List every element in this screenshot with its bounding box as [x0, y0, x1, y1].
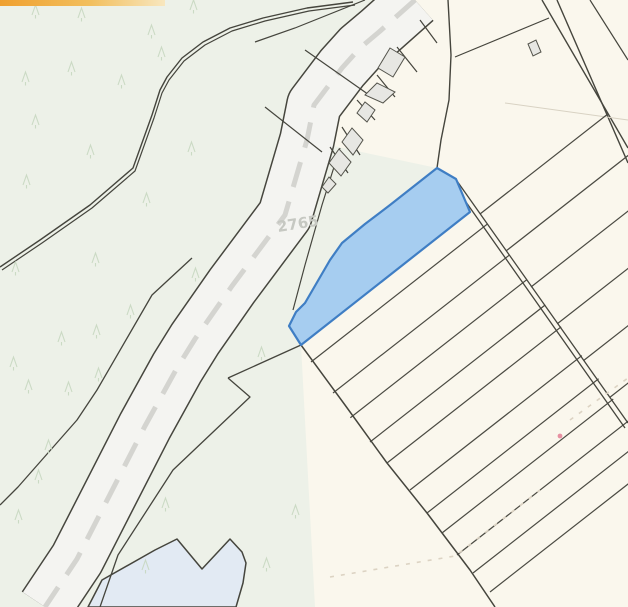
- top-accent-bar: [0, 0, 165, 6]
- pink-marker-dot: [558, 434, 563, 439]
- map-viewport[interactable]: 2765: [0, 0, 628, 607]
- cadastral-map[interactable]: 2765: [0, 0, 628, 607]
